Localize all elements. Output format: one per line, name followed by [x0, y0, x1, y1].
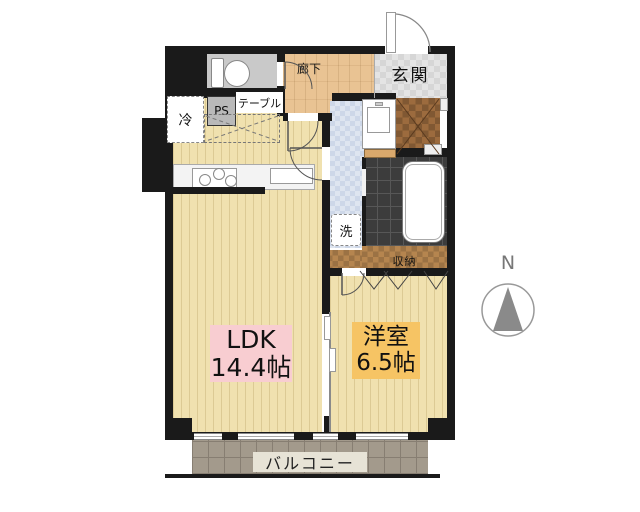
toilet-door-arc [285, 62, 312, 89]
compass-needle-icon [493, 287, 523, 331]
plan-annotations [0, 0, 640, 512]
washroom-door-arc [290, 148, 322, 180]
stove-burner-icon [226, 176, 237, 187]
folding-door-mark [424, 271, 448, 289]
folding-door-mark [384, 271, 412, 289]
stove-burner-icon [214, 169, 225, 180]
entrance-door-arc [396, 14, 430, 52]
floorplan: 冷 PS テーブル 廊下 玄関 洗 収納 LDK 14.4帖 洋室 6.5帖 バ… [0, 0, 640, 512]
stove-burner-icon [200, 175, 211, 186]
hall-ldk-door-arc [288, 121, 318, 151]
closet-door-arc [342, 273, 364, 295]
